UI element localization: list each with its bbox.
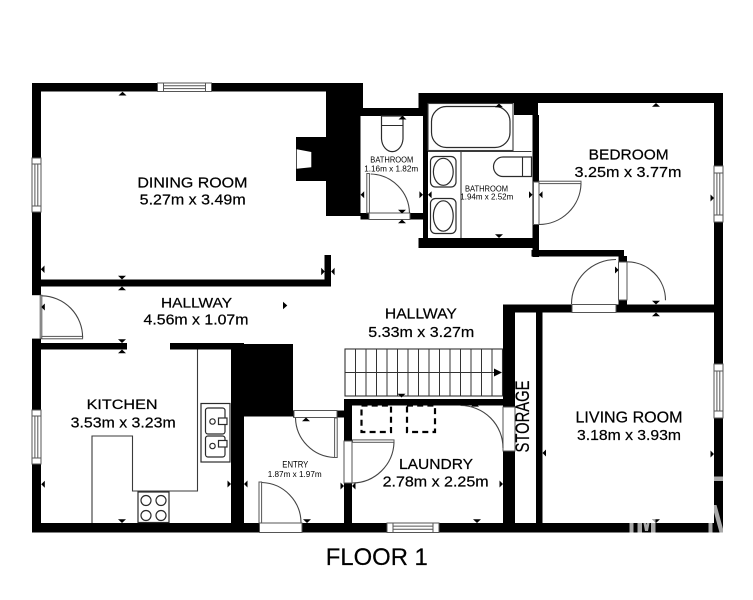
svg-text:BEDROOM: BEDROOM [589, 146, 669, 163]
svg-text:KITCHEN: KITCHEN [87, 396, 158, 412]
svg-text:LIVING ROOM: LIVING ROOM [576, 409, 683, 426]
svg-text:HALLWAY: HALLWAY [161, 295, 233, 311]
svg-text:2.78m x 2.25m: 2.78m x 2.25m [383, 475, 489, 491]
svg-text:5.27m x 3.49m: 5.27m x 3.49m [140, 193, 246, 209]
svg-text:FLOOR 1: FLOOR 1 [326, 544, 428, 571]
svg-text:1.87m x 1.97m: 1.87m x 1.97m [268, 469, 322, 479]
svg-text:LAUNDRY: LAUNDRY [399, 457, 473, 473]
svg-text:5.33m x 3.27m: 5.33m x 3.27m [368, 325, 474, 341]
svg-text:3.18m x 3.93m: 3.18m x 3.93m [577, 427, 681, 444]
svg-text:STORAGE: STORAGE [513, 381, 534, 453]
svg-text:HALLWAY: HALLWAY [385, 307, 457, 323]
svg-text:1.94m x 2.52m: 1.94m x 2.52m [460, 191, 513, 201]
svg-text:1.16m x 1.82m: 1.16m x 1.82m [364, 164, 418, 174]
svg-text:ENTRY: ENTRY [282, 459, 308, 469]
svg-text:DINING ROOM: DINING ROOM [137, 175, 247, 192]
svg-text:3.25m x 3.77m: 3.25m x 3.77m [575, 165, 682, 181]
svg-text:3.53m x 3.23m: 3.53m x 3.23m [71, 415, 176, 431]
svg-text:4.56m x 1.07m: 4.56m x 1.07m [144, 312, 249, 328]
